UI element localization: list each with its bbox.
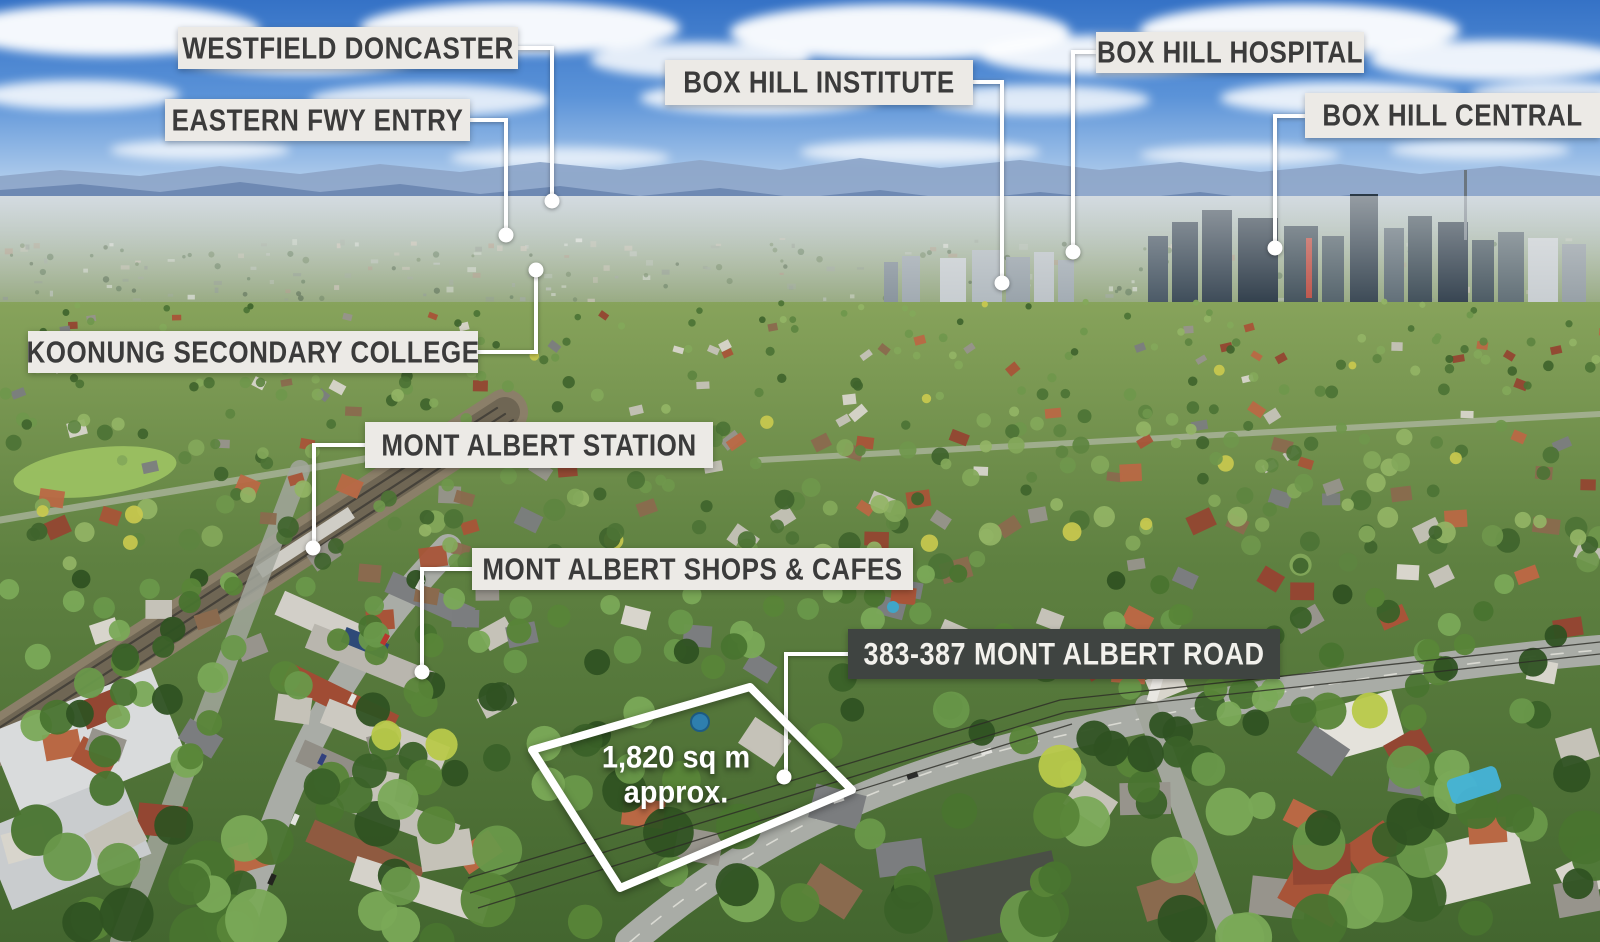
leader-dot-eastern-fwy-entry: [499, 228, 514, 243]
label-box-hill-hospital: BOX HILL HOSPITAL: [1096, 32, 1364, 73]
leader-line-box-hill-central: [1275, 116, 1305, 248]
label-westfield-doncaster: WESTFIELD DONCASTER: [178, 27, 518, 69]
leader-dot-box-hill-central: [1268, 241, 1283, 256]
leader-dot-koonung-secondary-college: [529, 263, 544, 278]
label-westfield-doncaster-text: WESTFIELD DONCASTER: [182, 30, 514, 66]
label-property-address-text: 383-387 MONT ALBERT ROAD: [863, 636, 1264, 672]
label-box-hill-central-text: BOX HILL CENTRAL: [1322, 98, 1582, 134]
leader-dot-westfield-doncaster: [545, 194, 560, 209]
leader-dot-mont-albert-station: [306, 541, 321, 556]
label-box-hill-institute-text: BOX HILL INSTITUTE: [683, 65, 954, 101]
label-koonung-secondary-college-text: KOONUNG SECONDARY COLLEGE: [26, 334, 479, 370]
leader-line-mont-albert-station: [314, 445, 365, 548]
label-mont-albert-station: MONT ALBERT STATION: [365, 422, 713, 468]
label-mont-albert-shops-cafes: MONT ALBERT SHOPS & CAFES: [472, 548, 913, 590]
label-eastern-fwy-entry: EASTERN FWY ENTRY: [165, 99, 470, 141]
label-eastern-fwy-entry-text: EASTERN FWY ENTRY: [172, 102, 464, 138]
property-area-line1: 1,820 sq m: [561, 740, 791, 778]
leader-line-eastern-fwy-entry: [470, 120, 506, 235]
label-box-hill-central: BOX HILL CENTRAL: [1305, 93, 1600, 138]
annotation-overlay: [0, 0, 1600, 942]
property-area-callout: 1,820 sq m approx.: [561, 741, 791, 811]
leader-dot-mont-albert-shops: [415, 665, 430, 680]
leader-line-box-hill-hospital: [1073, 52, 1096, 252]
label-koonung-secondary-college: KOONUNG SECONDARY COLLEGE: [28, 331, 478, 373]
leader-line-koonung-secondary-college: [478, 270, 536, 352]
label-property-address: 383-387 MONT ALBERT ROAD: [848, 629, 1280, 679]
property-area-line2: approx.: [561, 775, 791, 813]
label-box-hill-institute: BOX HILL INSTITUTE: [665, 60, 973, 105]
label-mont-albert-station-text: MONT ALBERT STATION: [381, 427, 696, 463]
label-box-hill-hospital-text: BOX HILL HOSPITAL: [1097, 35, 1363, 71]
leader-line-westfield-doncaster: [518, 48, 552, 201]
leader-line-box-hill-institute: [973, 82, 1002, 283]
leader-line-mont-albert-shops: [422, 569, 472, 672]
aerial-property-photo: WESTFIELD DONCASTER EASTERN FWY ENTRY BO…: [0, 0, 1600, 942]
label-mont-albert-shops-cafes-text: MONT ALBERT SHOPS & CAFES: [482, 551, 902, 587]
leader-dot-box-hill-institute: [995, 276, 1010, 291]
leader-dot-box-hill-hospital: [1066, 245, 1081, 260]
